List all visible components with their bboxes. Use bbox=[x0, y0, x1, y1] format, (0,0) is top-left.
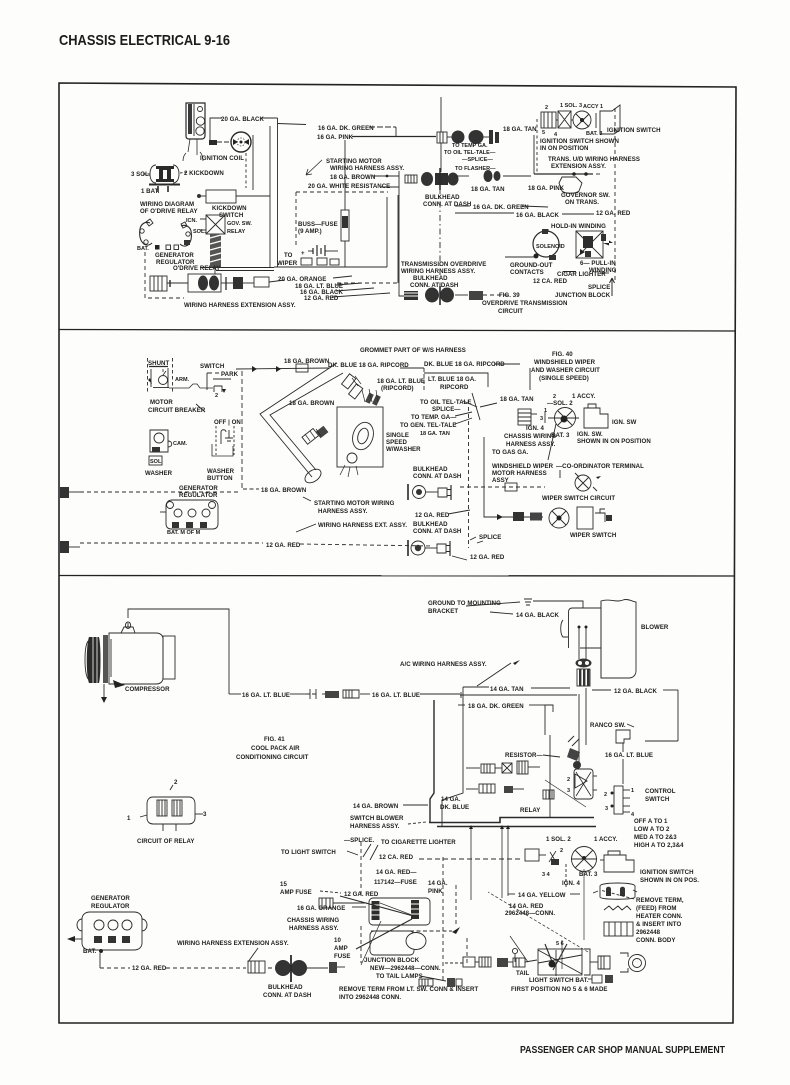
svg-text:TO TAIL LAMPS: TO TAIL LAMPS bbox=[376, 973, 423, 980]
svg-text:ACCY 1: ACCY 1 bbox=[583, 104, 603, 110]
svg-text:IGN. SW.: IGN. SW. bbox=[577, 431, 603, 438]
svg-text:GOV. SW.: GOV. SW. bbox=[227, 221, 252, 227]
svg-text:SWITCH: SWITCH bbox=[200, 363, 224, 370]
svg-text:—SOL. 2: —SOL. 2 bbox=[547, 400, 573, 407]
svg-text:W/WASHER: W/WASHER bbox=[386, 446, 421, 453]
svg-text:FIRST POSITION NO 5 & 6 MADE: FIRST POSITION NO 5 & 6 MADE bbox=[511, 986, 608, 993]
svg-text:TO OIL TEL-TALE: TO OIL TEL-TALE bbox=[420, 399, 472, 406]
svg-text:WIRING HARNESS EXTENSION ASSY.: WIRING HARNESS EXTENSION ASSY. bbox=[177, 940, 289, 947]
svg-text:1: 1 bbox=[544, 408, 547, 414]
svg-text:BLOWER: BLOWER bbox=[641, 624, 669, 631]
svg-text:SOL: SOL bbox=[150, 459, 162, 465]
svg-text:1: 1 bbox=[631, 788, 634, 794]
svg-text:1 SOL. 2: 1 SOL. 2 bbox=[546, 836, 571, 843]
svg-text:12 GA. RED: 12 GA. RED bbox=[470, 554, 505, 561]
svg-text:A/C WIRING HARNESS ASSY.: A/C WIRING HARNESS ASSY. bbox=[400, 661, 487, 668]
svg-text:12 GA. RED: 12 GA. RED bbox=[344, 891, 379, 898]
svg-text:IGN. 4: IGN. 4 bbox=[562, 880, 580, 887]
svg-text:12 GA. RED: 12 GA. RED bbox=[266, 542, 301, 549]
svg-text:117142—FUSE: 117142—FUSE bbox=[374, 879, 417, 886]
svg-text:16 GA. LT. BLUE: 16 GA. LT. BLUE bbox=[372, 692, 420, 699]
svg-text:HARNESS ASSY.: HARNESS ASSY. bbox=[506, 441, 556, 448]
svg-text:CHASSIS WIRING: CHASSIS WIRING bbox=[504, 433, 556, 440]
svg-text:HEATER CONN.: HEATER CONN. bbox=[636, 913, 683, 920]
svg-text:18 GA. DK. GREEN: 18 GA. DK. GREEN bbox=[468, 703, 524, 710]
svg-text:CIRCUIT OF RELAY: CIRCUIT OF RELAY bbox=[137, 838, 194, 845]
svg-text:LIGHT SWITCH BAT.: LIGHT SWITCH BAT. bbox=[529, 977, 589, 984]
svg-text:(9 AMP.): (9 AMP.) bbox=[298, 228, 322, 235]
svg-text:20 GA. ORANGE: 20 GA. ORANGE bbox=[278, 276, 326, 283]
svg-text:WIRING HARNESS EXTENSION ASSY.: WIRING HARNESS EXTENSION ASSY. bbox=[184, 302, 296, 309]
svg-text:16 GA. DK. GREEN: 16 GA. DK. GREEN bbox=[318, 125, 374, 132]
svg-text:AMP: AMP bbox=[334, 945, 348, 952]
svg-text:1 ACCY.: 1 ACCY. bbox=[572, 393, 596, 400]
svg-text:IN ON POSITION: IN ON POSITION bbox=[540, 145, 588, 152]
svg-text:3: 3 bbox=[540, 416, 543, 422]
svg-text:CONDITIONING CIRCUIT: CONDITIONING CIRCUIT bbox=[236, 754, 309, 761]
svg-text:REGULATOR: REGULATOR bbox=[91, 903, 130, 910]
svg-text:BULKHEAD: BULKHEAD bbox=[425, 194, 460, 201]
svg-text:BULKHEAD: BULKHEAD bbox=[413, 275, 448, 282]
svg-text:3: 3 bbox=[567, 788, 570, 794]
svg-text:ARM.: ARM. bbox=[175, 377, 190, 383]
svg-text:2962448—CONN.: 2962448—CONN. bbox=[505, 910, 555, 917]
svg-text:HARNESS ASSY.: HARNESS ASSY. bbox=[318, 508, 368, 515]
svg-text:MOTOR HARNESS: MOTOR HARNESS bbox=[492, 470, 547, 477]
svg-text:CONN. BODY: CONN. BODY bbox=[636, 937, 675, 944]
svg-text:CAM.: CAM. bbox=[173, 441, 188, 447]
svg-text:REMOVE TERM FROM LT. SW. CONN: REMOVE TERM FROM LT. SW. CONN & INSERT bbox=[339, 986, 478, 993]
svg-text:—CO-ORDINATOR TERMINAL: —CO-ORDINATOR TERMINAL bbox=[556, 463, 644, 470]
svg-text:12 GA. RED: 12 GA. RED bbox=[415, 512, 450, 519]
svg-text:BAT. 3: BAT. 3 bbox=[586, 131, 602, 137]
svg-text:CONN. AT DASH: CONN. AT DASH bbox=[410, 282, 458, 289]
svg-text:(RIPCORD): (RIPCORD) bbox=[381, 385, 414, 392]
svg-text:EXTENSION ASSY.: EXTENSION ASSY. bbox=[551, 163, 606, 170]
svg-text:O'DRIVE RELAY: O'DRIVE RELAY bbox=[173, 265, 220, 272]
svg-text:BAT.: BAT. bbox=[137, 246, 149, 252]
svg-text:WIPER SWITCH: WIPER SWITCH bbox=[570, 532, 616, 539]
svg-text:OF O'DRIVE RELAY: OF O'DRIVE RELAY bbox=[140, 208, 198, 215]
svg-text:BULKHEAD: BULKHEAD bbox=[268, 984, 303, 991]
svg-text:OVERDRIVE TRANSMISSION: OVERDRIVE TRANSMISSION bbox=[482, 300, 567, 307]
svg-text:HARNESS ASSY.: HARNESS ASSY. bbox=[350, 823, 400, 830]
svg-text:2: 2 bbox=[545, 105, 548, 111]
svg-text:TO OIL TEL-TALE—: TO OIL TEL-TALE— bbox=[444, 150, 496, 156]
svg-text:SOL.: SOL. bbox=[193, 229, 206, 235]
svg-text:18 GA. TAN: 18 GA. TAN bbox=[471, 186, 505, 193]
svg-text:18 GA. BROWN: 18 GA. BROWN bbox=[284, 358, 329, 365]
svg-text:14 GA. RED: 14 GA. RED bbox=[509, 903, 544, 910]
svg-text:14 GA. BROWN: 14 GA. BROWN bbox=[353, 803, 398, 810]
svg-text:DK. BLUE 18 GA. RIPCORD: DK. BLUE 18 GA. RIPCORD bbox=[424, 361, 505, 368]
svg-text:TO TEMP. GA—: TO TEMP. GA— bbox=[411, 414, 457, 421]
svg-text:5: 5 bbox=[542, 130, 545, 136]
svg-text:2: 2 bbox=[604, 792, 607, 798]
svg-text:CONTACTS: CONTACTS bbox=[510, 269, 544, 276]
svg-text:WIRING HARNESS ASSY.: WIRING HARNESS ASSY. bbox=[330, 165, 405, 172]
svg-text:KICKDOWN: KICKDOWN bbox=[212, 205, 247, 212]
svg-text:SHOWN IN ON POSITION: SHOWN IN ON POSITION bbox=[577, 438, 651, 445]
svg-text:12 GA. RED: 12 GA. RED bbox=[304, 295, 339, 302]
svg-text:14 GA. YELLOW: 14 GA. YELLOW bbox=[518, 892, 566, 899]
svg-text:SINGLE: SINGLE bbox=[386, 432, 409, 439]
svg-text:HARNESS ASSY.: HARNESS ASSY. bbox=[289, 925, 339, 932]
svg-text:STARTING MOTOR WIRING: STARTING MOTOR WIRING bbox=[314, 500, 395, 507]
svg-text:SHOWN IN ON POS.: SHOWN IN ON POS. bbox=[640, 877, 699, 884]
svg-text:FUSE: FUSE bbox=[334, 953, 350, 960]
svg-text:WINDSHIELD WIPER: WINDSHIELD WIPER bbox=[492, 463, 554, 470]
svg-text:IGNITION SWITCH SHOWN: IGNITION SWITCH SHOWN bbox=[540, 138, 619, 145]
svg-text:20 GA. WHITE RESISTANCE: 20 GA. WHITE RESISTANCE bbox=[308, 183, 390, 190]
svg-text:1 ACCY.: 1 ACCY. bbox=[594, 836, 618, 843]
svg-text:1: 1 bbox=[127, 815, 131, 822]
svg-text:18 GA. TAN: 18 GA. TAN bbox=[503, 126, 537, 133]
svg-text:DK. BLUE 18 GA. RIPCORD: DK. BLUE 18 GA. RIPCORD bbox=[328, 362, 409, 369]
svg-text:RANCO SW.: RANCO SW. bbox=[590, 722, 626, 729]
svg-text:18 GA. BROWN: 18 GA. BROWN bbox=[330, 174, 375, 181]
svg-text:PARK: PARK bbox=[221, 371, 239, 378]
svg-text:TRANS. U/D WIRING HARNESS: TRANS. U/D WIRING HARNESS bbox=[548, 156, 640, 163]
svg-text:BRACKET: BRACKET bbox=[428, 608, 458, 615]
svg-text:14 GA. TAN: 14 GA. TAN bbox=[490, 686, 524, 693]
svg-text:15: 15 bbox=[280, 881, 287, 888]
svg-text:RESISTOR—: RESISTOR— bbox=[505, 752, 543, 759]
svg-text:TRANSMISSION OVERDRIVE: TRANSMISSION OVERDRIVE bbox=[401, 261, 486, 268]
svg-text:1 SOL. 3: 1 SOL. 3 bbox=[560, 103, 582, 109]
svg-text:—SPLICE—: —SPLICE— bbox=[462, 157, 493, 163]
svg-text:GROUND TO MOUNTING: GROUND TO MOUNTING bbox=[428, 600, 501, 607]
svg-text:CIRCUIT: CIRCUIT bbox=[498, 308, 523, 315]
svg-text:2: 2 bbox=[567, 777, 570, 783]
svg-text:16 GA. BLACK: 16 GA. BLACK bbox=[516, 212, 559, 219]
svg-text:STARTING MOTOR: STARTING MOTOR bbox=[326, 158, 382, 165]
svg-text:REGULATOR: REGULATOR bbox=[179, 492, 218, 499]
svg-text:INTO 2962448 CONN.: INTO 2962448 CONN. bbox=[339, 994, 401, 1001]
svg-text:WIRING HARNESS ASSY.: WIRING HARNESS ASSY. bbox=[401, 268, 476, 275]
svg-text:WIPER SWITCH CIRCUIT: WIPER SWITCH CIRCUIT bbox=[542, 495, 615, 502]
svg-text:+: + bbox=[301, 250, 305, 257]
svg-text:ICN.: ICN. bbox=[186, 218, 197, 224]
svg-text:12 CA. RED: 12 CA. RED bbox=[379, 854, 414, 861]
svg-text:14 GA. RED—: 14 GA. RED— bbox=[376, 869, 417, 876]
svg-text:ON TRANS.: ON TRANS. bbox=[565, 199, 599, 206]
svg-text:DK. BLUE: DK. BLUE bbox=[440, 804, 469, 811]
svg-text:IGN. 4: IGN. 4 bbox=[526, 425, 544, 432]
svg-text:NEW—2962448—CONN.: NEW—2962448—CONN. bbox=[370, 965, 441, 972]
svg-text:SWITCH: SWITCH bbox=[645, 796, 669, 803]
svg-text:BULKHEAD: BULKHEAD bbox=[413, 466, 448, 473]
svg-text:COOL PACK AIR: COOL PACK AIR bbox=[251, 745, 300, 752]
svg-text:IGNITION COIL: IGNITION COIL bbox=[200, 155, 244, 162]
svg-text:HOLD-IN WINDING: HOLD-IN WINDING bbox=[551, 223, 606, 230]
svg-text:MED A TO 2&3: MED A TO 2&3 bbox=[634, 834, 677, 841]
svg-text:(FEED) FROM: (FEED) FROM bbox=[636, 905, 677, 912]
svg-text:18 GA. TAN: 18 GA. TAN bbox=[500, 396, 534, 403]
svg-text:GENERATOR: GENERATOR bbox=[91, 895, 130, 902]
svg-text:CONN. AT DASH: CONN. AT DASH bbox=[413, 473, 461, 480]
svg-text:18 GA. BROWN: 18 GA. BROWN bbox=[289, 400, 334, 407]
svg-text:MOTOR: MOTOR bbox=[150, 399, 173, 406]
svg-text:18 GA. TAN: 18 GA. TAN bbox=[420, 431, 450, 437]
svg-text:BUTTON: BUTTON bbox=[207, 475, 233, 482]
svg-text:WASHER: WASHER bbox=[145, 470, 173, 477]
svg-text:SPLICE: SPLICE bbox=[479, 534, 501, 541]
svg-text:2962448: 2962448 bbox=[636, 929, 661, 936]
svg-text:16 GA. DK. GREEN: 16 GA. DK. GREEN bbox=[473, 204, 529, 211]
svg-text:2: 2 bbox=[560, 848, 563, 854]
svg-text:14 GA.: 14 GA. bbox=[428, 880, 448, 887]
svg-text:BUSS—FUSE: BUSS—FUSE bbox=[298, 221, 338, 228]
svg-text:20 GA. BLACK: 20 GA. BLACK bbox=[221, 116, 264, 123]
svg-text:CHASSIS ELECTRICAL 9-16: CHASSIS ELECTRICAL 9-16 bbox=[59, 32, 230, 49]
svg-text:HIGH A TO 2,3&4: HIGH A TO 2,3&4 bbox=[634, 842, 684, 849]
svg-text:CONN. AT DASH: CONN. AT DASH bbox=[263, 992, 311, 999]
svg-text:GROUND-OUT: GROUND-OUT bbox=[510, 262, 553, 269]
svg-text:—SPLICE.: —SPLICE. bbox=[344, 837, 374, 844]
svg-text:COMPRESSOR: COMPRESSOR bbox=[125, 686, 170, 693]
svg-text:BAT.: BAT. bbox=[83, 948, 97, 955]
svg-text:JUNCTION BLOCK: JUNCTION BLOCK bbox=[364, 957, 420, 964]
svg-text:2 KICKDOWN: 2 KICKDOWN bbox=[184, 170, 224, 177]
svg-text:RIPCORD: RIPCORD bbox=[440, 384, 469, 391]
svg-text:TO LIGHT SWITCH: TO LIGHT SWITCH bbox=[281, 849, 336, 856]
svg-text:3: 3 bbox=[203, 811, 207, 818]
svg-text:AMP FUSE: AMP FUSE bbox=[280, 889, 312, 896]
svg-text:WIRING DIAGRAM: WIRING DIAGRAM bbox=[140, 201, 194, 208]
svg-text:BAT. 3: BAT. 3 bbox=[579, 871, 598, 878]
svg-text:WIPER: WIPER bbox=[277, 260, 298, 267]
svg-text:LOW A TO 2: LOW A TO 2 bbox=[634, 826, 670, 833]
svg-text:12 GA. BLACK: 12 GA. BLACK bbox=[614, 688, 657, 695]
svg-text:3 4: 3 4 bbox=[542, 872, 551, 878]
svg-text:& INSERT INTO: & INSERT INTO bbox=[636, 921, 681, 928]
svg-text:16 GA. PINK: 16 GA. PINK bbox=[317, 134, 354, 141]
svg-text:1 BAT.: 1 BAT. bbox=[141, 188, 160, 195]
svg-text:SWITCH BLOWER: SWITCH BLOWER bbox=[350, 815, 404, 822]
svg-text:16 GA. LT. BLUE: 16 GA. LT. BLUE bbox=[242, 692, 290, 699]
svg-text:PINK: PINK bbox=[428, 888, 443, 895]
svg-text:10: 10 bbox=[334, 937, 341, 944]
svg-text:TO GEN. TEL-TALE: TO GEN. TEL-TALE bbox=[400, 422, 456, 429]
svg-text:BULKHEAD: BULKHEAD bbox=[413, 521, 448, 528]
svg-text:TO GAS GA.: TO GAS GA. bbox=[492, 449, 529, 456]
svg-text:(SINGLE SPEED): (SINGLE SPEED) bbox=[539, 375, 589, 382]
svg-text:12 GA. RED: 12 GA. RED bbox=[132, 965, 167, 972]
svg-text:FIG. 39: FIG. 39 bbox=[499, 292, 520, 299]
svg-text:AND WASHER CIRCUIT: AND WASHER CIRCUIT bbox=[531, 367, 600, 374]
svg-text:GOVERNOR SW.: GOVERNOR SW. bbox=[561, 192, 610, 199]
svg-text:14 GA.: 14 GA. bbox=[441, 796, 461, 803]
svg-text:3: 3 bbox=[605, 806, 608, 812]
svg-text:GENERATOR: GENERATOR bbox=[179, 485, 218, 492]
svg-text:LT. BLUE 18 GA.: LT. BLUE 18 GA. bbox=[428, 376, 476, 383]
svg-text:GENERATOR: GENERATOR bbox=[155, 252, 194, 259]
svg-text:18 GA. LT. BLUE: 18 GA. LT. BLUE bbox=[377, 378, 425, 385]
svg-text:2: 2 bbox=[215, 393, 218, 399]
svg-text:TO TEMP GA.: TO TEMP GA. bbox=[452, 143, 488, 149]
svg-text:CHASSIS WIRING: CHASSIS WIRING bbox=[287, 917, 339, 924]
svg-text:JUNCTION BLOCK: JUNCTION BLOCK bbox=[555, 292, 611, 299]
svg-text:CIGAR LIGHTER: CIGAR LIGHTER bbox=[557, 271, 606, 278]
svg-text:18 GA. PINK: 18 GA. PINK bbox=[528, 185, 565, 192]
svg-text:OFF | ON: OFF | ON bbox=[214, 419, 241, 426]
svg-text:TO: TO bbox=[284, 252, 293, 259]
svg-text:OFF A TO 1: OFF A TO 1 bbox=[634, 818, 668, 825]
svg-text:SOLENOID: SOLENOID bbox=[536, 244, 565, 250]
svg-text:IGN. SW: IGN. SW bbox=[612, 419, 637, 426]
svg-text:RELAY: RELAY bbox=[227, 229, 245, 235]
svg-text:SPLICE—: SPLICE— bbox=[432, 406, 461, 413]
svg-text:12 CA. RED: 12 CA. RED bbox=[533, 278, 568, 285]
svg-text:12 GA. RED: 12 GA. RED bbox=[596, 210, 631, 217]
svg-text:TAIL: TAIL bbox=[516, 970, 530, 977]
svg-text:GROMMET PART OF W/S HARNESS: GROMMET PART OF W/S HARNESS bbox=[360, 347, 466, 354]
svg-text:14 GA. BLACK: 14 GA. BLACK bbox=[516, 612, 559, 619]
svg-text:16 GA. ORANGE: 16 GA. ORANGE bbox=[297, 905, 345, 912]
svg-text:TO CIGARETTE LIGHTER: TO CIGARETTE LIGHTER bbox=[381, 839, 456, 846]
svg-text:16 GA. LT. BLUE: 16 GA. LT. BLUE bbox=[605, 752, 653, 759]
svg-text:PASSENGER CAR SHOP MANUAL SUPP: PASSENGER CAR SHOP MANUAL SUPPLEMENT bbox=[520, 1044, 725, 1056]
svg-text:5 6: 5 6 bbox=[556, 941, 564, 947]
svg-text:3 SOL.: 3 SOL. bbox=[131, 171, 151, 178]
svg-text:WINDSHIELD WIPER: WINDSHIELD WIPER bbox=[534, 359, 596, 366]
svg-text:2: 2 bbox=[174, 779, 178, 786]
svg-text:CONN. AT DASH: CONN. AT DASH bbox=[423, 201, 471, 208]
svg-text:FIG. 41: FIG. 41 bbox=[264, 736, 285, 743]
svg-text:CONN. AT DASH: CONN. AT DASH bbox=[413, 528, 461, 535]
svg-text:RELAY: RELAY bbox=[520, 807, 540, 814]
svg-text:SPLICE: SPLICE bbox=[588, 284, 610, 291]
svg-text:WIRING HARNESS EXT. ASSY.: WIRING HARNESS EXT. ASSY. bbox=[318, 522, 407, 529]
svg-text:CIRCUIT BREAKER: CIRCUIT BREAKER bbox=[148, 407, 206, 414]
svg-text:18 GA. BROWN: 18 GA. BROWN bbox=[261, 487, 306, 494]
svg-text:6— PULL-IN: 6— PULL-IN bbox=[580, 260, 616, 267]
svg-text:WASHER: WASHER bbox=[207, 468, 235, 475]
svg-text:REMOVE TERM,: REMOVE TERM, bbox=[636, 897, 684, 904]
svg-text:CONTROL: CONTROL bbox=[645, 788, 676, 795]
svg-text:FIG. 40: FIG. 40 bbox=[552, 351, 573, 358]
svg-text:BAT. M OF M: BAT. M OF M bbox=[167, 530, 201, 536]
svg-text:IGNITION SWITCH: IGNITION SWITCH bbox=[640, 869, 694, 876]
svg-text:SPEED: SPEED bbox=[386, 439, 407, 446]
